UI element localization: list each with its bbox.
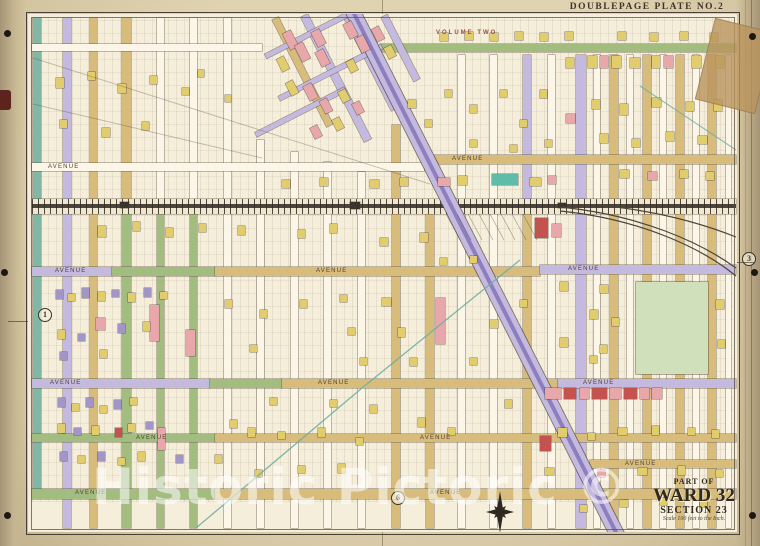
- binding-tab: [0, 90, 11, 110]
- watermark: Historic Pictoric ©: [92, 458, 627, 516]
- binding-hole: [749, 512, 756, 519]
- atlas-page: DOUBLEPAGE PLATE NO.2 AVENUEAVENUEAVENUE…: [0, 0, 760, 546]
- circled-plate-number: 1: [38, 308, 52, 322]
- binding-hole: [1, 269, 8, 276]
- binding-hole: [751, 269, 758, 276]
- margin-reference-line: [8, 321, 28, 322]
- margin-reference-line: [737, 262, 755, 263]
- binding-hole: [4, 512, 11, 519]
- binding-hole: [4, 30, 11, 37]
- circled-plate-number: 3: [742, 252, 756, 266]
- binding-hole: [749, 33, 756, 40]
